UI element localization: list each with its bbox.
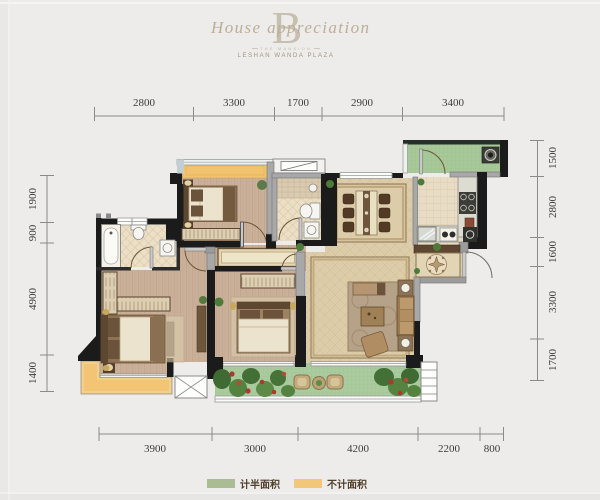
svg-text:不计面积: 不计面积 bbox=[327, 478, 367, 491]
svg-text:LESHAN WANDA PLAZA: LESHAN WANDA PLAZA bbox=[238, 53, 335, 59]
svg-text:House appreciation: House appreciation bbox=[210, 18, 369, 37]
svg-text:2800: 2800 bbox=[547, 196, 559, 219]
svg-text:4200: 4200 bbox=[347, 443, 370, 455]
svg-text:THE MANSION: THE MANSION bbox=[260, 46, 312, 51]
svg-text:3300: 3300 bbox=[223, 97, 246, 109]
svg-text:3400: 3400 bbox=[442, 97, 465, 109]
svg-text:1400: 1400 bbox=[27, 362, 39, 385]
svg-text:900: 900 bbox=[27, 224, 39, 241]
svg-text:4900: 4900 bbox=[27, 288, 39, 311]
svg-text:1900: 1900 bbox=[27, 188, 39, 211]
svg-text:1600: 1600 bbox=[547, 241, 559, 264]
svg-text:3300: 3300 bbox=[547, 291, 559, 314]
svg-text:2900: 2900 bbox=[351, 97, 374, 109]
svg-text:1700: 1700 bbox=[547, 349, 559, 372]
svg-text:1500: 1500 bbox=[547, 147, 559, 170]
svg-text:2800: 2800 bbox=[133, 97, 156, 109]
svg-text:800: 800 bbox=[484, 443, 501, 455]
svg-text:计半面积: 计半面积 bbox=[240, 478, 280, 491]
svg-text:2200: 2200 bbox=[438, 443, 461, 455]
svg-text:1700: 1700 bbox=[287, 97, 310, 109]
svg-text:3000: 3000 bbox=[244, 443, 267, 455]
svg-text:3900: 3900 bbox=[144, 443, 167, 455]
